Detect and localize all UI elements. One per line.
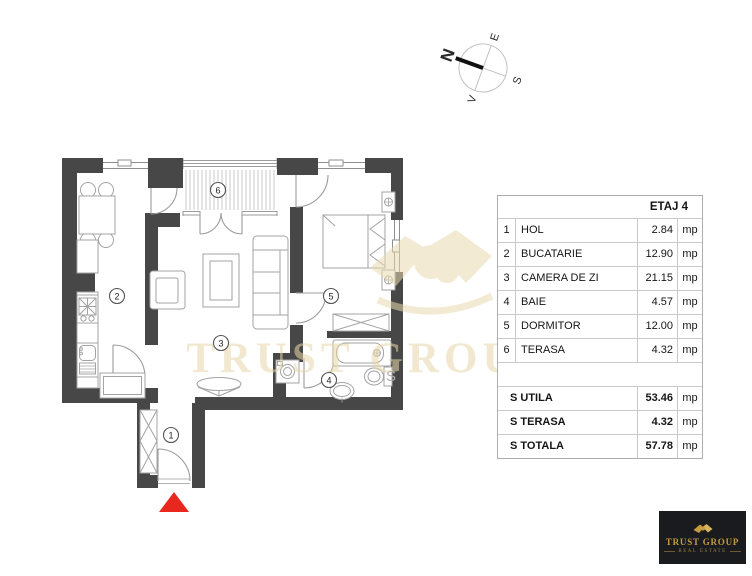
coffee-table xyxy=(203,254,239,307)
tagline-rule xyxy=(664,551,675,552)
table-row: 6 TERASA 4.32 mp xyxy=(498,338,702,362)
tagline-text: REAL ESTATE xyxy=(678,549,726,554)
table-total-row: S UTILA 53.46 mp xyxy=(498,386,702,410)
row-number: 3 xyxy=(498,267,516,290)
compass-rose: N E S V xyxy=(426,17,536,117)
table-row: 4 BAIE 4.57 mp xyxy=(498,290,702,314)
area-unit: mp xyxy=(678,411,702,434)
watermark-text: TRUST GROUP xyxy=(186,335,550,382)
room-area: 12.00 xyxy=(638,315,678,338)
total-value: 57.78 xyxy=(638,435,678,458)
window-sash-icon xyxy=(329,160,343,166)
svg-text:3: 3 xyxy=(218,338,223,348)
room-area: 4.32 xyxy=(638,339,678,362)
table-header: ETAJ 4 xyxy=(498,196,702,218)
nightstand xyxy=(382,192,395,212)
area-unit: mp xyxy=(678,267,702,290)
svg-text:5: 5 xyxy=(328,291,333,301)
bed xyxy=(323,215,385,268)
room-area: 2.84 xyxy=(638,219,678,242)
area-unit: mp xyxy=(678,315,702,338)
table-total-row: S TERASA 4.32 mp xyxy=(498,410,702,434)
total-value: 53.46 xyxy=(638,387,678,410)
tagline-rule xyxy=(730,551,741,552)
table-spacer xyxy=(498,362,702,386)
compass-west: V xyxy=(466,93,480,105)
furniture xyxy=(77,183,395,474)
area-unit: mp xyxy=(678,339,702,362)
entrance-door xyxy=(158,449,190,481)
window-sash-icon xyxy=(118,160,131,166)
terrace-hatch xyxy=(186,170,274,210)
kitchen-lower-door xyxy=(113,345,145,377)
room-name: BAIE xyxy=(516,291,638,314)
area-unit: mp xyxy=(678,243,702,266)
room-label-living: 3 xyxy=(214,336,229,351)
entrance-marker xyxy=(159,492,189,512)
armchair xyxy=(150,271,185,309)
bedroom-door xyxy=(296,175,328,207)
room-area: 12.90 xyxy=(638,243,678,266)
room-name: TERASA xyxy=(516,339,638,362)
row-number: 4 xyxy=(498,291,516,314)
handshake-icon xyxy=(691,522,715,535)
compass-north: N xyxy=(437,46,459,64)
room-name: DORMITOR xyxy=(516,315,638,338)
table-total-row: S TOTALA 57.78 mp xyxy=(498,434,702,458)
total-name: S TOTALA xyxy=(498,435,638,458)
dining-table xyxy=(79,183,115,248)
fridge xyxy=(100,373,145,398)
brand-tagline: REAL ESTATE xyxy=(664,549,740,554)
room-label-bedroom: 5 xyxy=(324,289,339,304)
room-name: HOL xyxy=(516,219,638,242)
row-number: 1 xyxy=(498,219,516,242)
total-name: S UTILA xyxy=(498,387,638,410)
bedroom-inner-door xyxy=(296,293,326,323)
table-row: 5 DORMITOR 12.00 mp xyxy=(498,314,702,338)
compass-south: S xyxy=(511,75,525,86)
wardrobe xyxy=(140,410,157,473)
brand-logo: TRUST GROUP REAL ESTATE xyxy=(659,511,746,564)
area-unit: mp xyxy=(678,435,702,458)
area-table: ETAJ 4 1 HOL 2.84 mp 2 BUCATARIE 12.90 m… xyxy=(497,195,703,459)
floorplan-page: TRUST GROUP S 1 2 3 4 5 6 N E S V ETAJ 4… xyxy=(0,0,752,576)
area-unit: mp xyxy=(678,387,702,410)
row-number: 2 xyxy=(498,243,516,266)
row-number: 5 xyxy=(498,315,516,338)
terrace-french-doors xyxy=(200,213,242,234)
svg-text:4: 4 xyxy=(326,375,331,385)
total-name: S TERASA xyxy=(498,411,638,434)
area-unit: mp xyxy=(678,219,702,242)
table-row: 2 BUCATARIE 12.90 mp xyxy=(498,242,702,266)
sofa xyxy=(253,236,288,329)
svg-text:6: 6 xyxy=(215,185,220,195)
kitchen-door xyxy=(151,188,177,214)
svg-text:2: 2 xyxy=(114,291,119,301)
room-label-kitchen: 2 xyxy=(110,289,125,304)
compass-east: E xyxy=(488,32,502,43)
area-unit: mp xyxy=(678,291,702,314)
room-area: 4.57 xyxy=(638,291,678,314)
entrance-threshold xyxy=(158,479,190,484)
room-label-terrace: 6 xyxy=(211,183,226,198)
room-label-hall: 1 xyxy=(164,428,179,443)
row-number: 6 xyxy=(498,339,516,362)
room-name: BUCATARIE xyxy=(516,243,638,266)
room-label-bathroom: 4 xyxy=(322,373,337,388)
closet xyxy=(333,314,389,331)
watermark-letter: S xyxy=(386,368,396,385)
svg-text:1: 1 xyxy=(168,430,173,440)
table-row: 1 HOL 2.84 mp xyxy=(498,218,702,242)
table-row: 3 CAMERA DE ZI 21.15 mp xyxy=(498,266,702,290)
total-value: 4.32 xyxy=(638,411,678,434)
room-name: CAMERA DE ZI xyxy=(516,267,638,290)
room-area: 21.15 xyxy=(638,267,678,290)
brand-name: TRUST GROUP xyxy=(666,537,739,547)
